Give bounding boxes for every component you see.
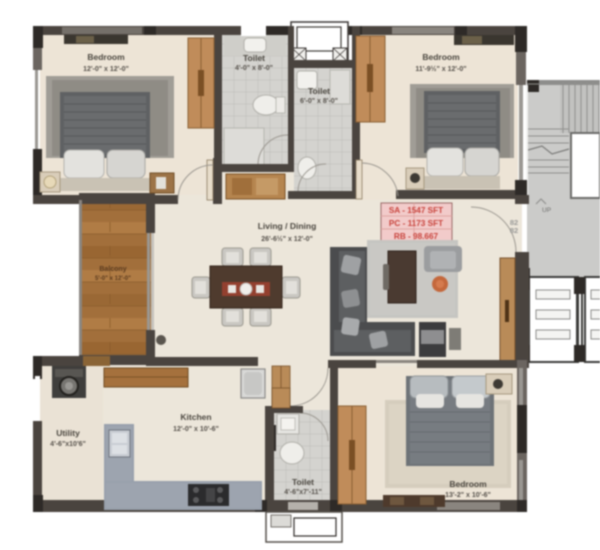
svg-text:5'-0" x 12'-0": 5'-0" x 12'-0" bbox=[95, 276, 131, 282]
svg-text:Toilet: Toilet bbox=[308, 86, 330, 96]
svg-text:Bedroom: Bedroom bbox=[449, 479, 487, 489]
svg-text:82: 82 bbox=[510, 226, 518, 235]
svg-text:Bedroom: Bedroom bbox=[87, 52, 125, 62]
svg-text:Kitchen: Kitchen bbox=[180, 412, 211, 422]
svg-text:26'-6½" x 12'-0": 26'-6½" x 12'-0" bbox=[261, 235, 313, 243]
svg-text:12'-0" x 12'-0": 12'-0" x 12'-0" bbox=[83, 66, 129, 73]
svg-text:12'-0" x 10'-6": 12'-0" x 10'-6" bbox=[173, 426, 219, 433]
svg-text:Bedroom: Bedroom bbox=[422, 52, 460, 62]
svg-text:4'-6"x10'6": 4'-6"x10'6" bbox=[50, 441, 86, 448]
svg-text:11'-9½" x 12'-0": 11'-9½" x 12'-0" bbox=[415, 65, 466, 73]
svg-text:Utility: Utility bbox=[56, 428, 80, 438]
svg-text:4'-0" x 8'-0": 4'-0" x 8'-0" bbox=[235, 65, 273, 72]
svg-text:Toilet: Toilet bbox=[292, 477, 314, 487]
svg-text:UP: UP bbox=[542, 207, 551, 214]
svg-text:SA - 1547 SFT: SA - 1547 SFT bbox=[389, 206, 443, 215]
svg-text:Balcony: Balcony bbox=[99, 266, 126, 273]
svg-text:Toilet: Toilet bbox=[243, 53, 265, 63]
svg-text:Living / Dining: Living / Dining bbox=[258, 221, 317, 231]
svg-text:RB - 98.667: RB - 98.667 bbox=[394, 232, 439, 241]
svg-text:13'-2" x 10'-6": 13'-2" x 10'-6" bbox=[445, 492, 491, 499]
svg-text:6'-0" x 8'-0": 6'-0" x 8'-0" bbox=[300, 98, 338, 105]
svg-text:4'-6"x7'-11": 4'-6"x7'-11" bbox=[284, 489, 322, 496]
svg-text:PC - 1173 SFT: PC - 1173 SFT bbox=[389, 219, 443, 228]
